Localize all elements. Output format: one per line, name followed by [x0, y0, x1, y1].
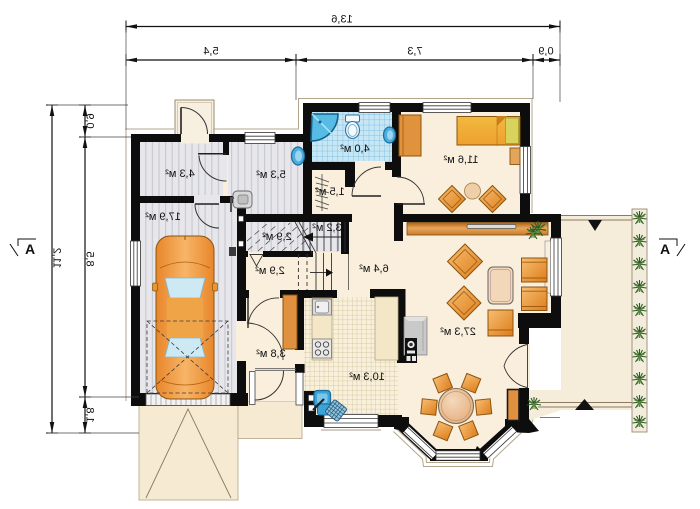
svg-text:13,6: 13,6 — [331, 14, 352, 26]
svg-text:3,8 м²: 3,8 м² — [256, 348, 286, 360]
svg-text:6,4 м²: 6,4 м² — [359, 263, 389, 275]
svg-text:7,3: 7,3 — [407, 46, 422, 58]
svg-text:3,2 м²: 3,2 м² — [312, 222, 342, 234]
svg-text:10,3 м²: 10,3 м² — [349, 371, 385, 383]
svg-text:1,8: 1,8 — [84, 407, 96, 422]
svg-text:A: A — [25, 241, 35, 257]
svg-text:1,5 м²: 1,5 м² — [315, 186, 345, 198]
svg-text:8,5: 8,5 — [84, 251, 96, 266]
svg-text:A: A — [660, 241, 670, 257]
svg-text:27,3 м²: 27,3 м² — [440, 326, 476, 338]
svg-text:0,9: 0,9 — [84, 113, 96, 128]
svg-text:4,0 м²: 4,0 м² — [340, 143, 370, 155]
svg-text:5,4: 5,4 — [203, 46, 218, 58]
svg-text:2,9 м²: 2,9 м² — [262, 231, 292, 243]
svg-text:0,9: 0,9 — [538, 46, 553, 58]
svg-text:2,9 м²: 2,9 м² — [255, 265, 285, 277]
svg-text:5,3 м²: 5,3 м² — [256, 169, 286, 181]
svg-text:11,2: 11,2 — [51, 248, 63, 269]
svg-text:17,9 м²: 17,9 м² — [145, 211, 181, 223]
svg-text:11,6 м²: 11,6 м² — [443, 154, 478, 166]
svg-text:4,3 м²: 4,3 м² — [165, 168, 195, 180]
